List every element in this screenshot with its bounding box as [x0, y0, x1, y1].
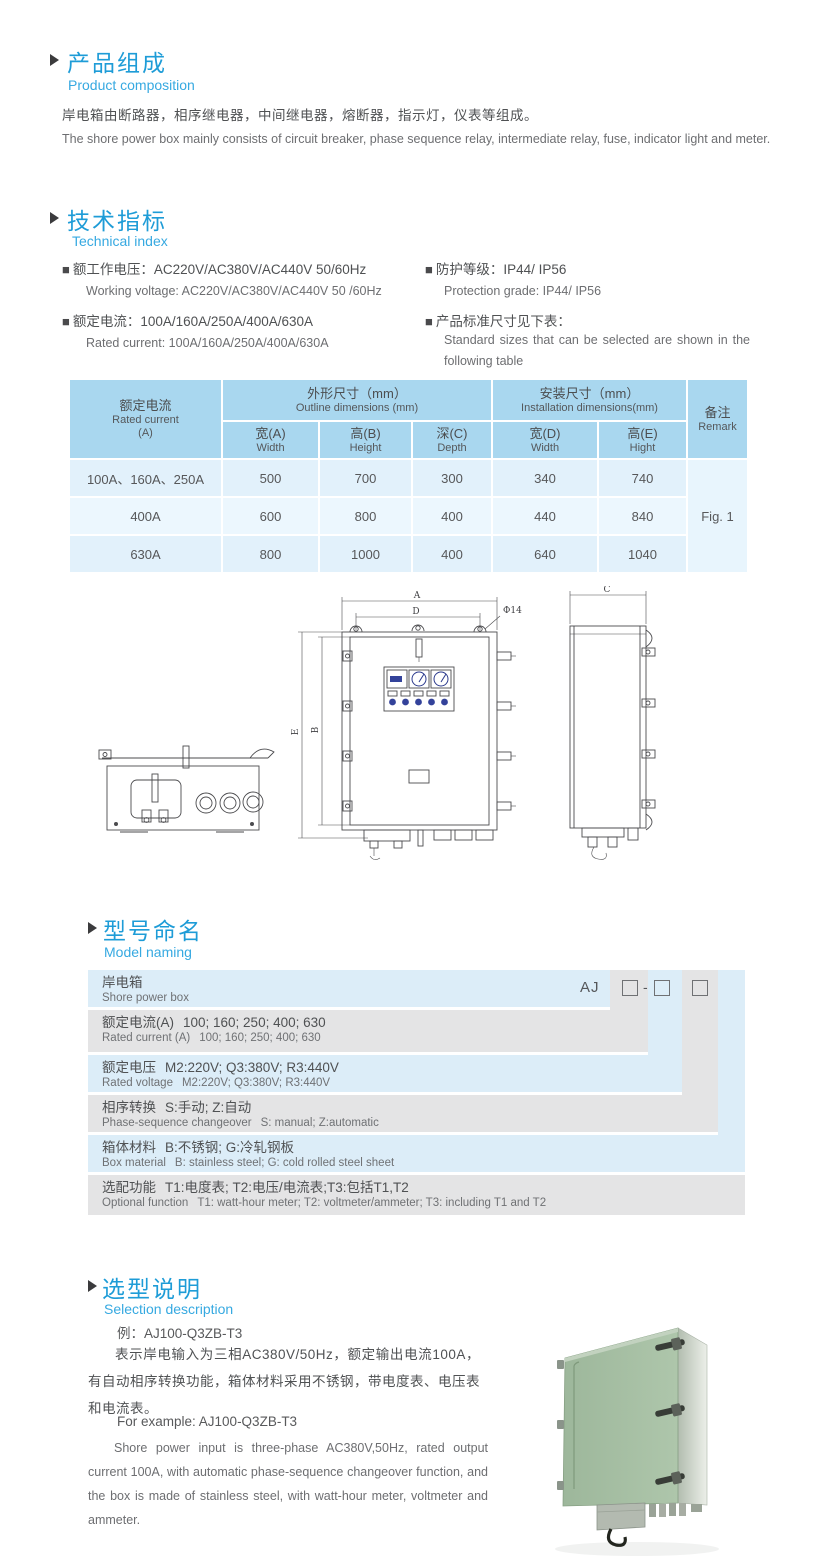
- section-arrow-icon: [50, 212, 59, 224]
- selection-example-en: For example: AJ100-Q3ZB-T3: [117, 1414, 297, 1429]
- tech-item-current-zh: ■额定电流：100A/160A/250A/400A/630A: [62, 310, 313, 330]
- square-bullet-icon: ■: [425, 314, 433, 329]
- tech-item-sizes-en: Standard sizes that can be selected are …: [444, 330, 750, 372]
- table-cell: 400: [413, 498, 491, 534]
- dim-label-phi14: Φ14: [503, 606, 522, 616]
- composition-title-zh: 产品组成: [67, 44, 167, 78]
- square-bullet-icon: ■: [425, 262, 433, 277]
- table-cell: 440: [493, 498, 597, 534]
- col-header-outline: 外形尺寸（mm） Outline dimensions (mm): [223, 380, 491, 420]
- model-code-prefix: AJ: [580, 979, 600, 996]
- square-bullet-icon: ■: [62, 262, 70, 277]
- dim-label-b: B: [311, 726, 321, 733]
- col-header-rated-current: 额定电流 Rated current (A): [70, 380, 221, 458]
- naming-title-zh: 型号命名: [103, 912, 203, 946]
- sub-header-width-a: 宽(A)Width: [223, 422, 318, 458]
- tech-item-current-en: Rated current: 100A/160A/250A/400A/630A: [86, 336, 329, 350]
- hinges: [557, 1360, 564, 1490]
- table-cell: 700: [320, 460, 411, 496]
- bottom-fittings: [597, 1503, 702, 1545]
- bottom-fittings: [364, 830, 493, 860]
- naming-row-box-material: 箱体材料B:不锈钢; G:冷轧钢板 Box materialB: stainle…: [88, 1135, 745, 1172]
- naming-row-rated-voltage: 额定电压M2:220V; Q3:380V; R3:440V Rated volt…: [88, 1055, 682, 1092]
- composition-body-en: The shore power box mainly consists of c…: [62, 132, 782, 146]
- sub-header-height-e: 高(E)Hight: [599, 422, 686, 458]
- model-code-row: AJ -: [88, 970, 745, 1007]
- table-cell: 800: [223, 536, 318, 572]
- model-naming-table: 岸电箱 Shore power box 额定电流(A)100; 160; 250…: [88, 970, 745, 1215]
- naming-row-rated-current: 额定电流(A)100; 160; 250; 400; 630 Rated cur…: [88, 1010, 648, 1052]
- nameplate: [409, 770, 429, 783]
- table-cell: 740: [599, 460, 686, 496]
- code-box-current: [622, 980, 638, 996]
- dim-label-a: A: [413, 591, 421, 601]
- instrument-panel: [384, 667, 454, 711]
- table-cell: 500: [223, 460, 318, 496]
- table-cell: 300: [413, 460, 491, 496]
- tech-item-protection-zh: ■防护等级：IP44/ IP56: [425, 258, 566, 278]
- table-cell: 640: [493, 536, 597, 572]
- col-header-installation: 安装尺寸（mm） Installation dimensions(mm): [493, 380, 686, 420]
- front-view-drawing: A D Φ14 E B: [288, 586, 546, 871]
- square-bullet-icon: ■: [62, 314, 70, 329]
- naming-row-optional-function: 选配功能T1:电度表; T2:电压/电流表;T3:包括T1,T2 Optiona…: [88, 1175, 745, 1215]
- table-cell: 1000: [320, 536, 411, 572]
- naming-title-en: Model naming: [104, 944, 192, 960]
- cable-glands: [196, 792, 263, 813]
- spec-table: 额定电流 Rated current (A) 外形尺寸（mm） Outline …: [70, 380, 747, 572]
- product-photo-shore-power-box: [545, 1316, 795, 1566]
- table-cell: 340: [493, 460, 597, 496]
- tech-item-protection-en: Protection grade: IP44/ IP56: [444, 284, 601, 298]
- sub-header-depth-c: 深(C)Depth: [413, 422, 491, 458]
- tech-item-voltage-en: Working voltage: AC220V/AC380V/AC440V 50…: [86, 284, 382, 298]
- code-box-function: [692, 980, 708, 996]
- photo-shadow: [555, 1542, 719, 1556]
- sub-header-height-b: 高(B)Height: [320, 422, 411, 458]
- selection-title-en: Selection description: [104, 1301, 233, 1317]
- side-latches: [642, 630, 655, 830]
- table-cell: 400A: [70, 498, 221, 534]
- sub-header-width-d: 宽(D)Width: [493, 422, 597, 458]
- selection-example-zh: 例：AJ100-Q3ZB-T3: [117, 1322, 242, 1342]
- composition-body-zh: 岸电箱由断路器，相序继电器，中间继电器，熔断器，指示灯，仪表等组成。: [62, 104, 762, 124]
- section-arrow-icon: [88, 922, 97, 934]
- dim-label-d: D: [412, 607, 419, 617]
- code-dash: -: [643, 979, 648, 995]
- section-arrow-icon: [88, 1280, 97, 1292]
- side-bottom-fittings: [582, 828, 638, 859]
- bottom-view-drawing: [86, 740, 291, 848]
- tech-item-voltage-zh: ■额工作电压：AC220V/AC380V/AC440V 50/60Hz: [62, 258, 366, 278]
- selection-body-zh: 表示岸电输入为三相AC380V/50Hz，额定输出电流100A，有自动相序转换功…: [88, 1341, 480, 1422]
- remark-figure-cell: Fig. 1: [688, 460, 747, 572]
- side-view-drawing: C: [550, 586, 710, 878]
- col-header-remark: 备注 Remark: [688, 380, 747, 458]
- hinges: [343, 651, 352, 811]
- table-cell: 400: [413, 536, 491, 572]
- technical-title-en: Technical index: [72, 233, 168, 249]
- technical-title-zh: 技术指标: [67, 202, 167, 236]
- code-box-voltage: [654, 980, 670, 996]
- dim-label-e: E: [291, 729, 301, 736]
- dim-label-c: C: [604, 586, 611, 595]
- table-cell: 1040: [599, 536, 686, 572]
- table-cell: 600: [223, 498, 318, 534]
- section-arrow-icon: [50, 54, 59, 66]
- table-cell: 630A: [70, 536, 221, 572]
- selection-title-zh: 选型说明: [102, 1270, 202, 1304]
- composition-title-en: Product composition: [68, 77, 195, 93]
- datasheet-page: 产品组成 Product composition 岸电箱由断路器，相序继电器，中…: [0, 0, 830, 1568]
- selection-body-en: Shore power input is three-phase AC380V,…: [88, 1436, 488, 1532]
- table-cell: 800: [320, 498, 411, 534]
- naming-row-phase-sequence: 相序转换S:手动; Z:自动 Phase-sequence changeover…: [88, 1095, 718, 1132]
- latches: [497, 652, 516, 810]
- table-cell: 100A、160A、250A: [70, 460, 221, 496]
- tech-item-sizes-zh: ■产品标准尺寸见下表：: [425, 310, 571, 330]
- table-cell: 840: [599, 498, 686, 534]
